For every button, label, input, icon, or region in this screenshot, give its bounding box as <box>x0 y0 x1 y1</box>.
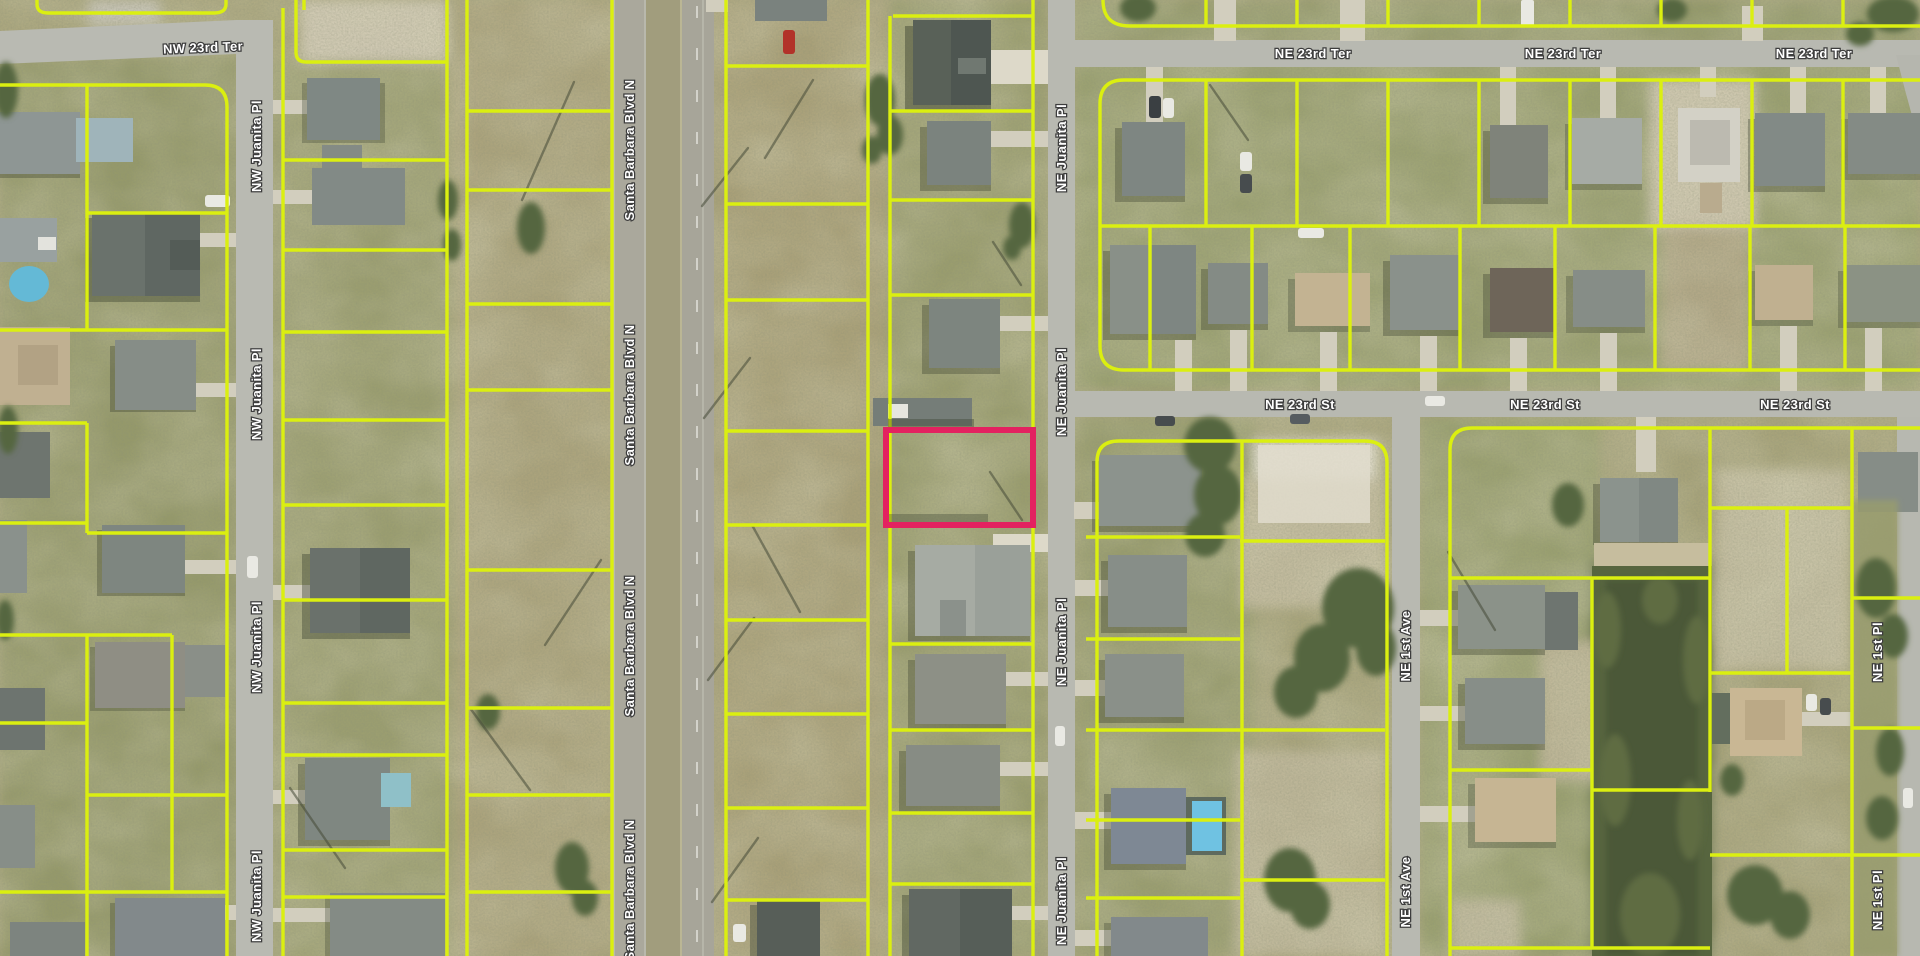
svg-text:NE 1st Pl: NE 1st Pl <box>1870 622 1885 682</box>
svg-text:NE Juanita Pl: NE Juanita Pl <box>1054 598 1069 686</box>
svg-text:NE Juanita Pl: NE Juanita Pl <box>1054 857 1069 945</box>
svg-text:NW 23rd Ter: NW 23rd Ter <box>163 38 244 56</box>
svg-text:Santa Barbara Blvd N: Santa Barbara Blvd N <box>622 80 637 221</box>
svg-text:NE 23rd Ter: NE 23rd Ter <box>1776 46 1852 61</box>
svg-text:NW Juanita Pl: NW Juanita Pl <box>249 100 264 192</box>
svg-text:NE 1st Ave: NE 1st Ave <box>1398 857 1413 928</box>
svg-text:NW Juanita Pl: NW Juanita Pl <box>249 601 264 693</box>
svg-text:Santa Barbara Blvd N: Santa Barbara Blvd N <box>622 820 637 956</box>
svg-text:Santa Barbara Blvd N: Santa Barbara Blvd N <box>622 325 637 466</box>
svg-text:NE 23rd St: NE 23rd St <box>1265 397 1335 412</box>
svg-text:NE Juanita Pl: NE Juanita Pl <box>1054 348 1069 436</box>
svg-text:NE 23rd Ter: NE 23rd Ter <box>1525 46 1601 61</box>
svg-text:NE 23rd St: NE 23rd St <box>1510 397 1580 412</box>
svg-text:NW Juanita Pl: NW Juanita Pl <box>249 850 264 942</box>
svg-text:NE 23rd Ter: NE 23rd Ter <box>1275 46 1351 61</box>
svg-text:NE 1st Ave: NE 1st Ave <box>1398 611 1413 682</box>
svg-text:NE 1st Pl: NE 1st Pl <box>1870 870 1885 930</box>
svg-text:NE Juanita Pl: NE Juanita Pl <box>1054 104 1069 192</box>
svg-text:NW Juanita Pl: NW Juanita Pl <box>249 348 264 440</box>
svg-text:NE 23rd St: NE 23rd St <box>1760 397 1830 412</box>
svg-text:Santa Barbara Blvd N: Santa Barbara Blvd N <box>622 576 637 717</box>
